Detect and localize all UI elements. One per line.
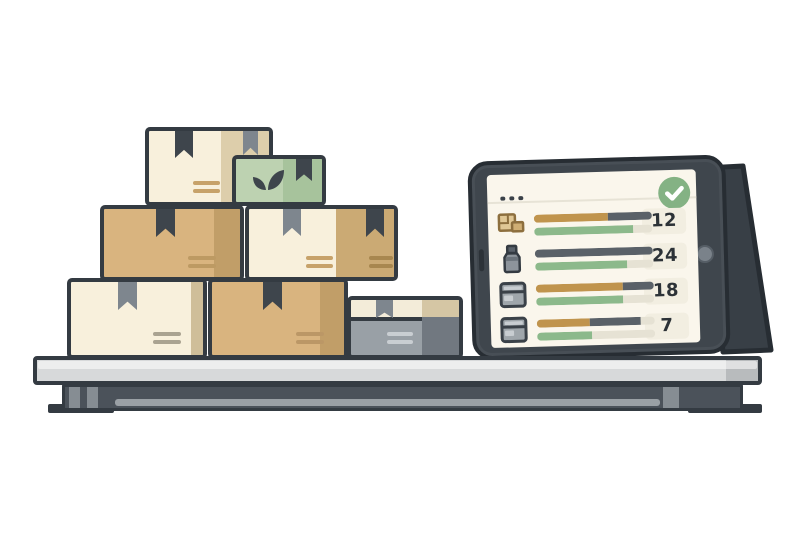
progress-bar-top (534, 212, 652, 223)
inventory-row: 12 (488, 203, 698, 244)
tape-flap-icon (118, 282, 137, 310)
jar-icon (497, 244, 528, 275)
boxes-icon (496, 209, 527, 240)
inventory-row: 7 (491, 308, 701, 349)
beam-bracket (663, 387, 679, 408)
progress-bars (534, 205, 652, 208)
shipping-label-lines (306, 256, 333, 272)
shipping-label-lines (188, 256, 216, 272)
cardboard-box (67, 278, 207, 359)
tablet: 12 24 18 7 (467, 154, 730, 360)
box-side-panel (214, 209, 240, 277)
cardboard-box (208, 278, 348, 359)
inventory-list: 12 24 18 7 (488, 203, 701, 349)
progress-bar-top (537, 316, 655, 327)
tape-flap-icon (156, 209, 175, 237)
shelf-beam (62, 384, 743, 411)
progress-bar-bottom (536, 294, 654, 305)
shipping-label-lines (387, 332, 413, 348)
tape-flap-icon (263, 282, 282, 310)
box-side-panel (191, 282, 203, 355)
tape-flap-icon (175, 131, 193, 158)
menu-dots-icon (500, 185, 528, 205)
speaker-slot-icon (479, 249, 485, 271)
tablet-screen: 12 24 18 7 (487, 169, 701, 348)
bin-icon (498, 279, 529, 310)
shipping-label-lines (153, 332, 181, 348)
progress-bar-bottom (537, 329, 655, 340)
bin-icon (499, 314, 530, 345)
progress-bar-top (535, 246, 653, 257)
shelf-highlight (38, 361, 757, 369)
progress-bar-top (536, 281, 654, 292)
cardboard-box (245, 205, 398, 281)
inventory-row: 18 (490, 273, 700, 314)
shipping-label-lines (296, 332, 324, 348)
illustration-canvas: 12 24 18 7 (0, 0, 800, 533)
cardboard-box (100, 205, 244, 281)
home-button (696, 245, 714, 263)
beam-bracket (87, 387, 98, 408)
shelf-surface (33, 356, 762, 385)
tape-flap-icon (283, 209, 301, 236)
shipping-label-lines (193, 181, 220, 197)
beam-bracket (69, 387, 80, 408)
leaf-icon (248, 166, 290, 198)
gray-storage-box (347, 296, 463, 359)
eco-box (232, 155, 326, 206)
progress-bar-bottom (535, 259, 653, 270)
box-side-panel (422, 317, 459, 355)
progress-bar-bottom (534, 225, 652, 236)
inventory-row: 24 (489, 238, 699, 279)
beam-rail (115, 399, 660, 406)
shipping-label-lines (369, 256, 393, 272)
